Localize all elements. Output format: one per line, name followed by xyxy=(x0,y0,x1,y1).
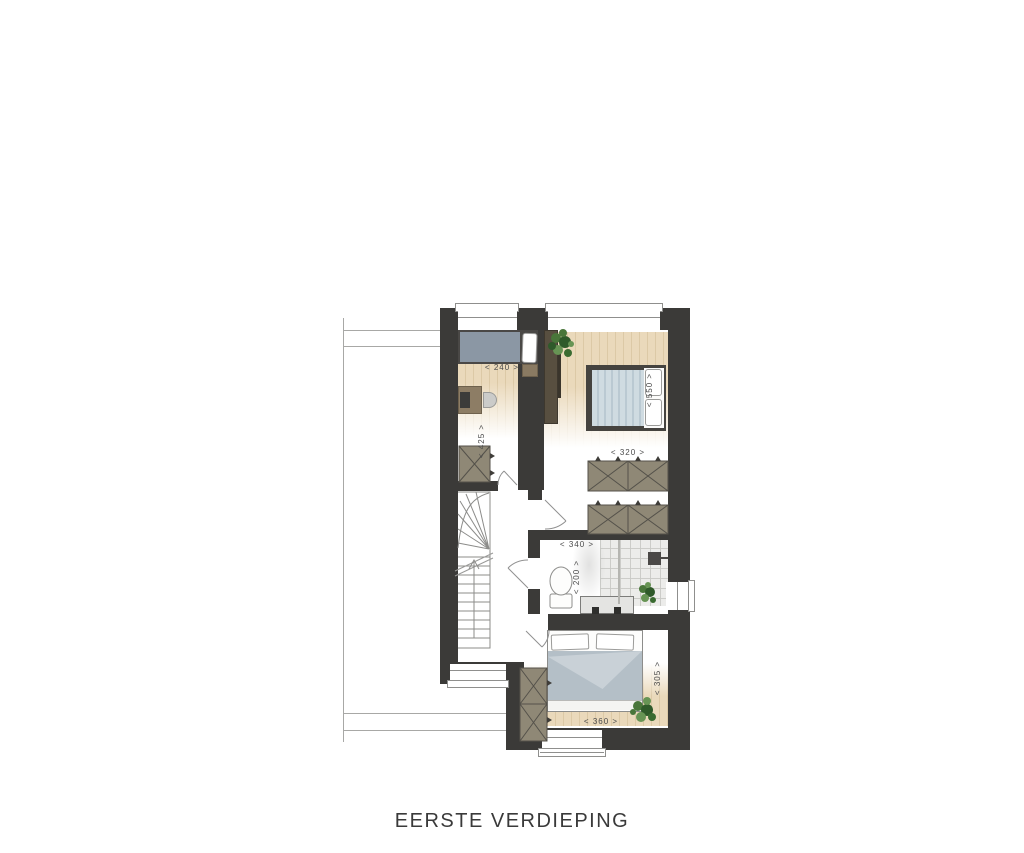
staircase xyxy=(455,492,493,648)
dim-bedroom-left-depth: < 425 > xyxy=(478,424,486,458)
wardrobe-bedroom-master xyxy=(520,668,552,741)
door-bedroom-master xyxy=(526,631,549,647)
floorplan-canvas: < 240 > < 425 > < 550 > < 320 > < 340 > … xyxy=(0,0,1024,853)
plant-bedroom-right xyxy=(548,329,574,357)
plant-bathroom xyxy=(639,582,656,603)
dim-master-depth: < 305 > xyxy=(654,661,662,695)
vanity-faucets xyxy=(592,607,621,614)
dim-bedroom-right-width: < 320 > xyxy=(611,449,645,457)
wardrobe-bedroom-right-row2 xyxy=(588,500,668,534)
dim-master-width: < 360 > xyxy=(584,718,618,726)
dim-bedroom-right-depth: < 550 > xyxy=(646,373,654,407)
plant-bedroom-master xyxy=(630,697,656,722)
door-bedroom-right xyxy=(545,500,566,529)
dim-bathroom-depth: < 200 > xyxy=(573,560,581,594)
dim-bedroom-left-width: < 240 > xyxy=(485,364,519,372)
wardrobe-bedroom-right-row1 xyxy=(588,456,668,491)
door-bedroom-left xyxy=(498,471,517,485)
dim-bathroom-width: < 340 > xyxy=(560,541,594,549)
toilet xyxy=(550,567,572,608)
page-title: EERSTE VERDIEPING xyxy=(0,810,1024,833)
door-bathroom xyxy=(508,560,528,588)
plan-linework xyxy=(0,0,1024,853)
